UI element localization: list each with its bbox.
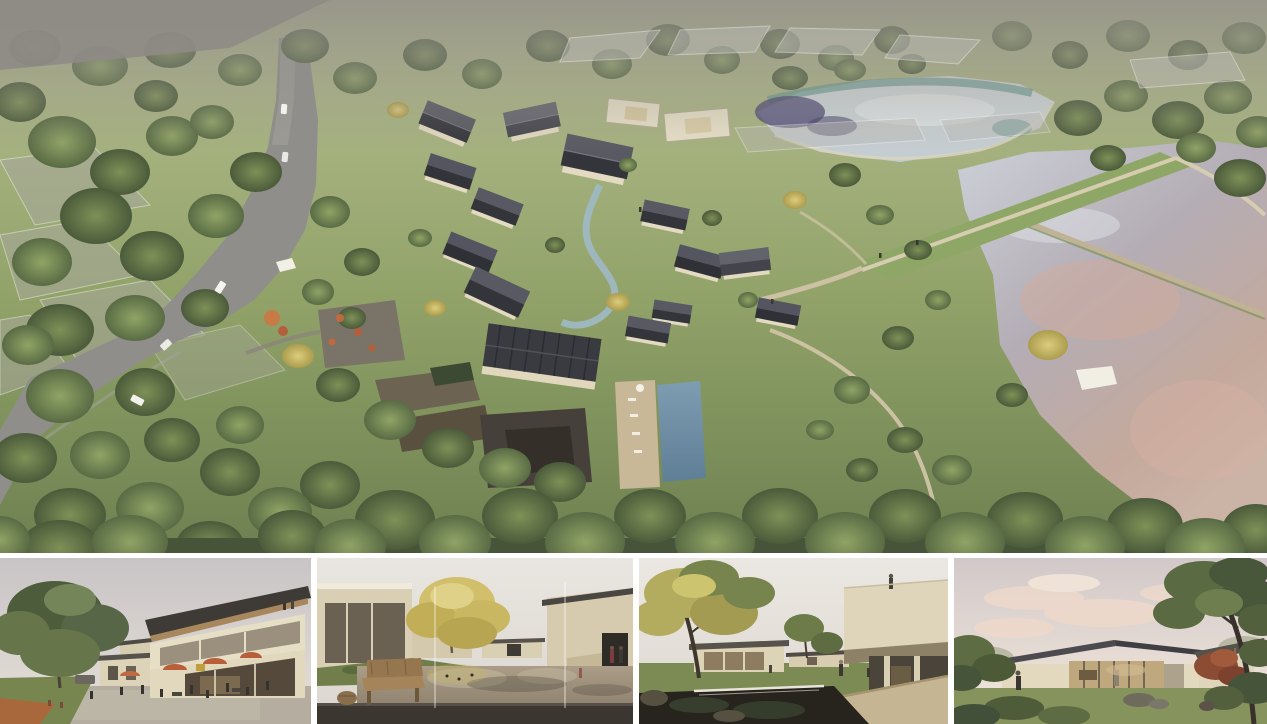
garden-pond-scene: [639, 558, 948, 724]
aerial-masterplan-rendering: [0, 0, 1267, 553]
pond-courtyard-scene: [317, 558, 633, 724]
pavilion-scene: [954, 558, 1267, 724]
thumbnail-row: [0, 558, 1267, 724]
courtyard-foreground-deck: [317, 703, 633, 724]
thumbnail-lakeside-pavilion-view: [954, 558, 1267, 724]
thumbnail-reflecting-pond-courtyard-view: [317, 558, 633, 724]
aerial-scene: [0, 0, 1267, 553]
plaza-scene: [0, 558, 311, 724]
pavilion-person: [1016, 671, 1022, 691]
thumbnail-plaza-cafe-view: [0, 558, 311, 724]
thumbnail-garden-pond-waterfall-view: [639, 558, 948, 724]
garden-left-building: [689, 640, 789, 672]
presentation-board: [0, 0, 1267, 724]
